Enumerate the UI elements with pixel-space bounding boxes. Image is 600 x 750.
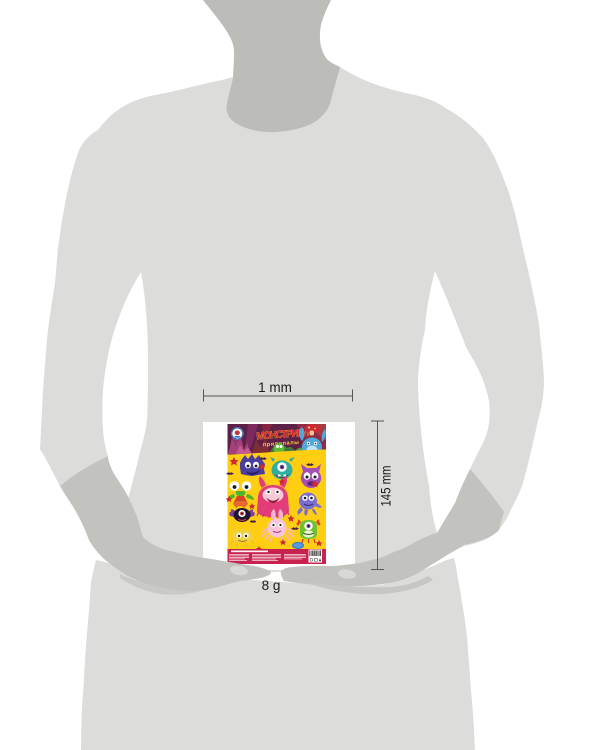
svg-text:8 g: 8 g <box>262 578 281 593</box>
svg-text:145 mm: 145 mm <box>379 466 394 507</box>
svg-text:1 mm: 1 mm <box>258 380 292 395</box>
